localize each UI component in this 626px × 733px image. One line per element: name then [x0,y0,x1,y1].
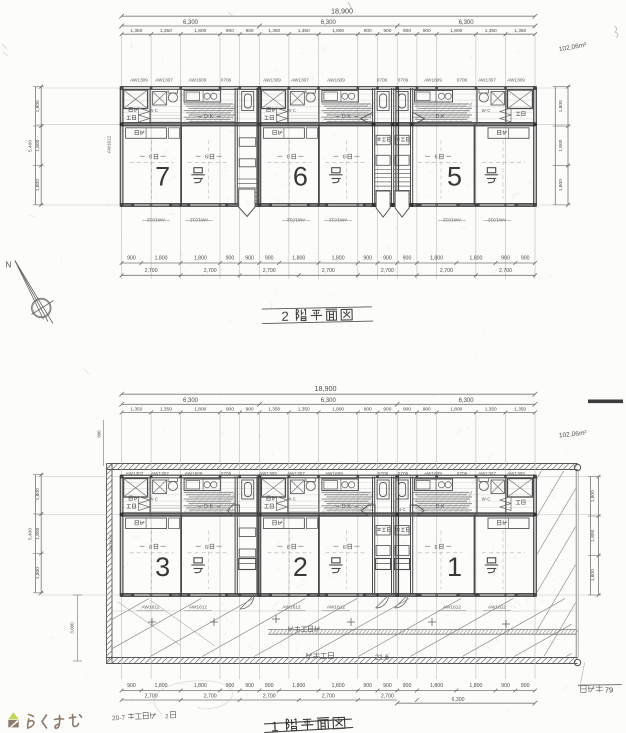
svg-text:900: 900 [521,256,530,262]
svg-text:1,800: 1,800 [194,28,206,34]
svg-text:600: 600 [97,430,102,438]
svg-text:AW1612: AW1612 [107,135,112,153]
svg-text:900: 900 [383,256,392,262]
svg-text:20-7: 20-7 [112,715,126,722]
svg-text:D·K: D·K [436,504,445,510]
svg-text:W·C: W·C [149,108,158,113]
svg-text:1,350: 1,350 [160,406,172,412]
svg-text:900: 900 [127,256,136,262]
svg-text:6,300: 6,300 [459,398,475,404]
svg-text:AW1609: AW1609 [325,471,343,476]
svg-text:2,700: 2,700 [204,268,217,274]
svg-text:2,700: 2,700 [204,694,217,700]
svg-text:1,800: 1,800 [558,179,564,191]
svg-text:AW1307: AW1307 [478,471,496,476]
svg-text:1,800: 1,800 [558,139,564,151]
svg-text:1,350: 1,350 [268,406,280,412]
svg-text:D·K: D·K [342,504,351,510]
svg-text:2,700: 2,700 [381,268,394,274]
svg-text:AW1307: AW1307 [155,78,173,83]
svg-text:D·K: D·K [342,114,351,120]
svg-text:900: 900 [265,256,274,262]
svg-text:1,350: 1,350 [485,406,497,412]
svg-text:1,800: 1,800 [332,683,345,689]
svg-text:3,000: 3,000 [70,622,75,634]
svg-text:0706: 0706 [221,78,232,83]
svg-text:1,800: 1,800 [194,406,206,412]
svg-text:AW1612: AW1612 [190,217,209,223]
svg-text:5,400: 5,400 [28,528,34,540]
svg-text:1,800: 1,800 [35,527,41,539]
svg-text:W·C: W·C [482,497,491,502]
svg-text:1,800: 1,800 [332,256,345,262]
svg-text:6: 6 [293,162,308,192]
svg-text:1,800: 1,800 [35,488,41,500]
svg-text:N: N [5,260,11,270]
svg-text:W·C: W·C [149,497,158,502]
svg-text:6: 6 [205,155,208,161]
svg-text:0706: 0706 [377,78,388,83]
svg-text:2,700: 2,700 [263,268,276,274]
svg-text:W·C: W·C [287,108,296,113]
svg-text:D·K: D·K [436,114,445,120]
svg-text:AW1307: AW1307 [291,78,309,83]
svg-text:900: 900 [501,256,510,262]
svg-text:900: 900 [245,683,254,689]
svg-text:1,800: 1,800 [450,28,462,34]
svg-text:18,900: 18,900 [331,7,353,16]
svg-text:AW1612: AW1612 [488,217,507,223]
svg-text:900: 900 [383,28,391,34]
svg-text:900: 900 [364,28,372,34]
svg-text:900: 900 [423,406,431,412]
svg-text:1,800: 1,800 [332,28,344,34]
svg-text:6: 6 [205,545,208,551]
svg-text:0706: 0706 [398,78,409,83]
svg-text:1: 1 [447,552,462,582]
svg-text:1,350: 1,350 [130,28,142,34]
svg-text:AW1612: AW1612 [109,534,114,552]
svg-text:900: 900 [383,406,391,412]
svg-text:1,800: 1,800 [430,683,443,689]
svg-text:1,350: 1,350 [130,406,142,412]
svg-text:1,800: 1,800 [292,256,305,262]
svg-text:900: 900 [245,256,254,262]
svg-text:1: 1 [271,719,279,733]
svg-text:AW1612: AW1612 [329,217,348,223]
svg-text:900: 900 [363,683,372,689]
svg-text:900: 900 [403,683,412,689]
svg-text:21.6: 21.6 [375,653,389,662]
svg-text:AW1307: AW1307 [287,471,305,476]
svg-text:AW1609: AW1609 [424,78,442,83]
svg-text:900: 900 [383,683,392,689]
svg-text:6,300: 6,300 [183,398,199,404]
svg-text:2,700: 2,700 [499,268,512,274]
svg-text:900: 900 [246,28,254,34]
svg-text:1,800: 1,800 [469,683,482,689]
svg-text:1,350: 1,350 [268,28,280,34]
svg-text:6: 6 [435,545,438,551]
svg-text:2,700: 2,700 [322,694,335,700]
svg-text:2,700: 2,700 [322,268,335,274]
svg-text:AW1309: AW1309 [263,78,281,83]
svg-text:AW1307: AW1307 [151,471,169,476]
svg-text:AW1609: AW1609 [189,78,207,83]
svg-text:2,700: 2,700 [145,268,158,274]
svg-text:1,800: 1,800 [469,256,482,262]
svg-text:1,800: 1,800 [35,567,41,579]
svg-text:900: 900 [226,256,235,262]
svg-text:AW1309: AW1309 [130,78,148,83]
svg-text:1,800: 1,800 [590,569,596,581]
svg-text:7: 7 [155,162,170,192]
svg-text:D·K: D·K [204,504,213,510]
svg-text:2: 2 [281,309,289,324]
svg-text:0706: 0706 [378,471,389,476]
svg-text:AW1612: AW1612 [287,217,306,223]
svg-text:1,800: 1,800 [590,490,596,502]
svg-text:900: 900 [423,28,431,34]
svg-text:6,300: 6,300 [321,20,337,26]
svg-text:900: 900 [403,28,411,34]
svg-text:2,700: 2,700 [263,694,276,700]
svg-text:18,900: 18,900 [315,384,337,393]
svg-text:AW1307: AW1307 [126,471,144,476]
svg-text:900: 900 [501,683,510,689]
svg-text:1,350: 1,350 [298,406,310,412]
svg-text:W·C: W·C [482,108,491,113]
svg-text:1,350: 1,350 [298,28,310,34]
svg-text:AW1612: AW1612 [189,605,208,611]
svg-text:900: 900 [521,683,530,689]
svg-text:2,700: 2,700 [381,694,394,700]
svg-text:1,350: 1,350 [514,406,526,412]
svg-text:0706: 0706 [457,78,468,83]
svg-text:AW1609: AW1609 [185,471,203,476]
svg-text:5,400: 5,400 [28,140,34,152]
svg-text:1,800: 1,800 [558,100,564,112]
svg-text:6: 6 [435,155,438,161]
svg-text:6,300: 6,300 [321,398,337,404]
svg-text:900: 900 [226,28,234,34]
svg-text:1,800: 1,800 [590,529,596,541]
svg-text:AW1612: AW1612 [327,605,346,611]
svg-text:1,350: 1,350 [160,28,172,34]
svg-text:0706: 0706 [457,471,468,476]
svg-text:6: 6 [343,545,346,551]
svg-text:1,800: 1,800 [332,406,344,412]
svg-text:1,800: 1,800 [35,179,41,191]
svg-text:1,800: 1,800 [194,256,207,262]
svg-text:AW1612: AW1612 [147,217,166,223]
svg-text:900: 900 [363,256,372,262]
svg-text:6: 6 [343,155,346,161]
svg-text:AW1309: AW1309 [507,78,525,83]
svg-text:1,800: 1,800 [450,406,462,412]
svg-text:900: 900 [403,256,412,262]
svg-text:6,300: 6,300 [183,20,199,26]
svg-text:6,300: 6,300 [459,20,475,26]
svg-text:1,350: 1,350 [485,28,497,34]
svg-text:0706: 0706 [398,471,409,476]
svg-text:1,800: 1,800 [35,139,41,151]
svg-text:W·C: W·C [287,497,296,502]
svg-text:900: 900 [226,406,234,412]
svg-text:900: 900 [265,683,274,689]
svg-text:1,800: 1,800 [35,100,41,112]
svg-text:900: 900 [403,406,411,412]
svg-text:5: 5 [447,162,462,192]
svg-text:AW1612: AW1612 [443,217,462,223]
svg-text:1,800: 1,800 [292,683,305,689]
svg-text:1,800: 1,800 [155,683,168,689]
svg-text:900: 900 [364,406,372,412]
svg-text:6,300: 6,300 [452,697,465,703]
svg-text:79: 79 [605,686,613,695]
svg-text:2,700: 2,700 [440,268,453,274]
svg-text:AW1609: AW1609 [327,78,345,83]
svg-text:1,800: 1,800 [155,256,168,262]
svg-text:AW1309: AW1309 [507,471,525,476]
svg-text:2,700: 2,700 [145,694,158,700]
svg-text:2: 2 [293,552,308,582]
svg-text:AW1307: AW1307 [478,78,496,83]
svg-text:900: 900 [127,683,136,689]
svg-text:3: 3 [155,552,170,582]
svg-text:1,350: 1,350 [514,28,526,34]
svg-text:N·C: N·C [398,507,407,512]
svg-text:900: 900 [246,406,254,412]
svg-text:1,800: 1,800 [194,683,207,689]
svg-text:1,800: 1,800 [430,256,443,262]
svg-text:AW1609: AW1609 [424,471,442,476]
svg-text:AW1309: AW1309 [259,471,277,476]
